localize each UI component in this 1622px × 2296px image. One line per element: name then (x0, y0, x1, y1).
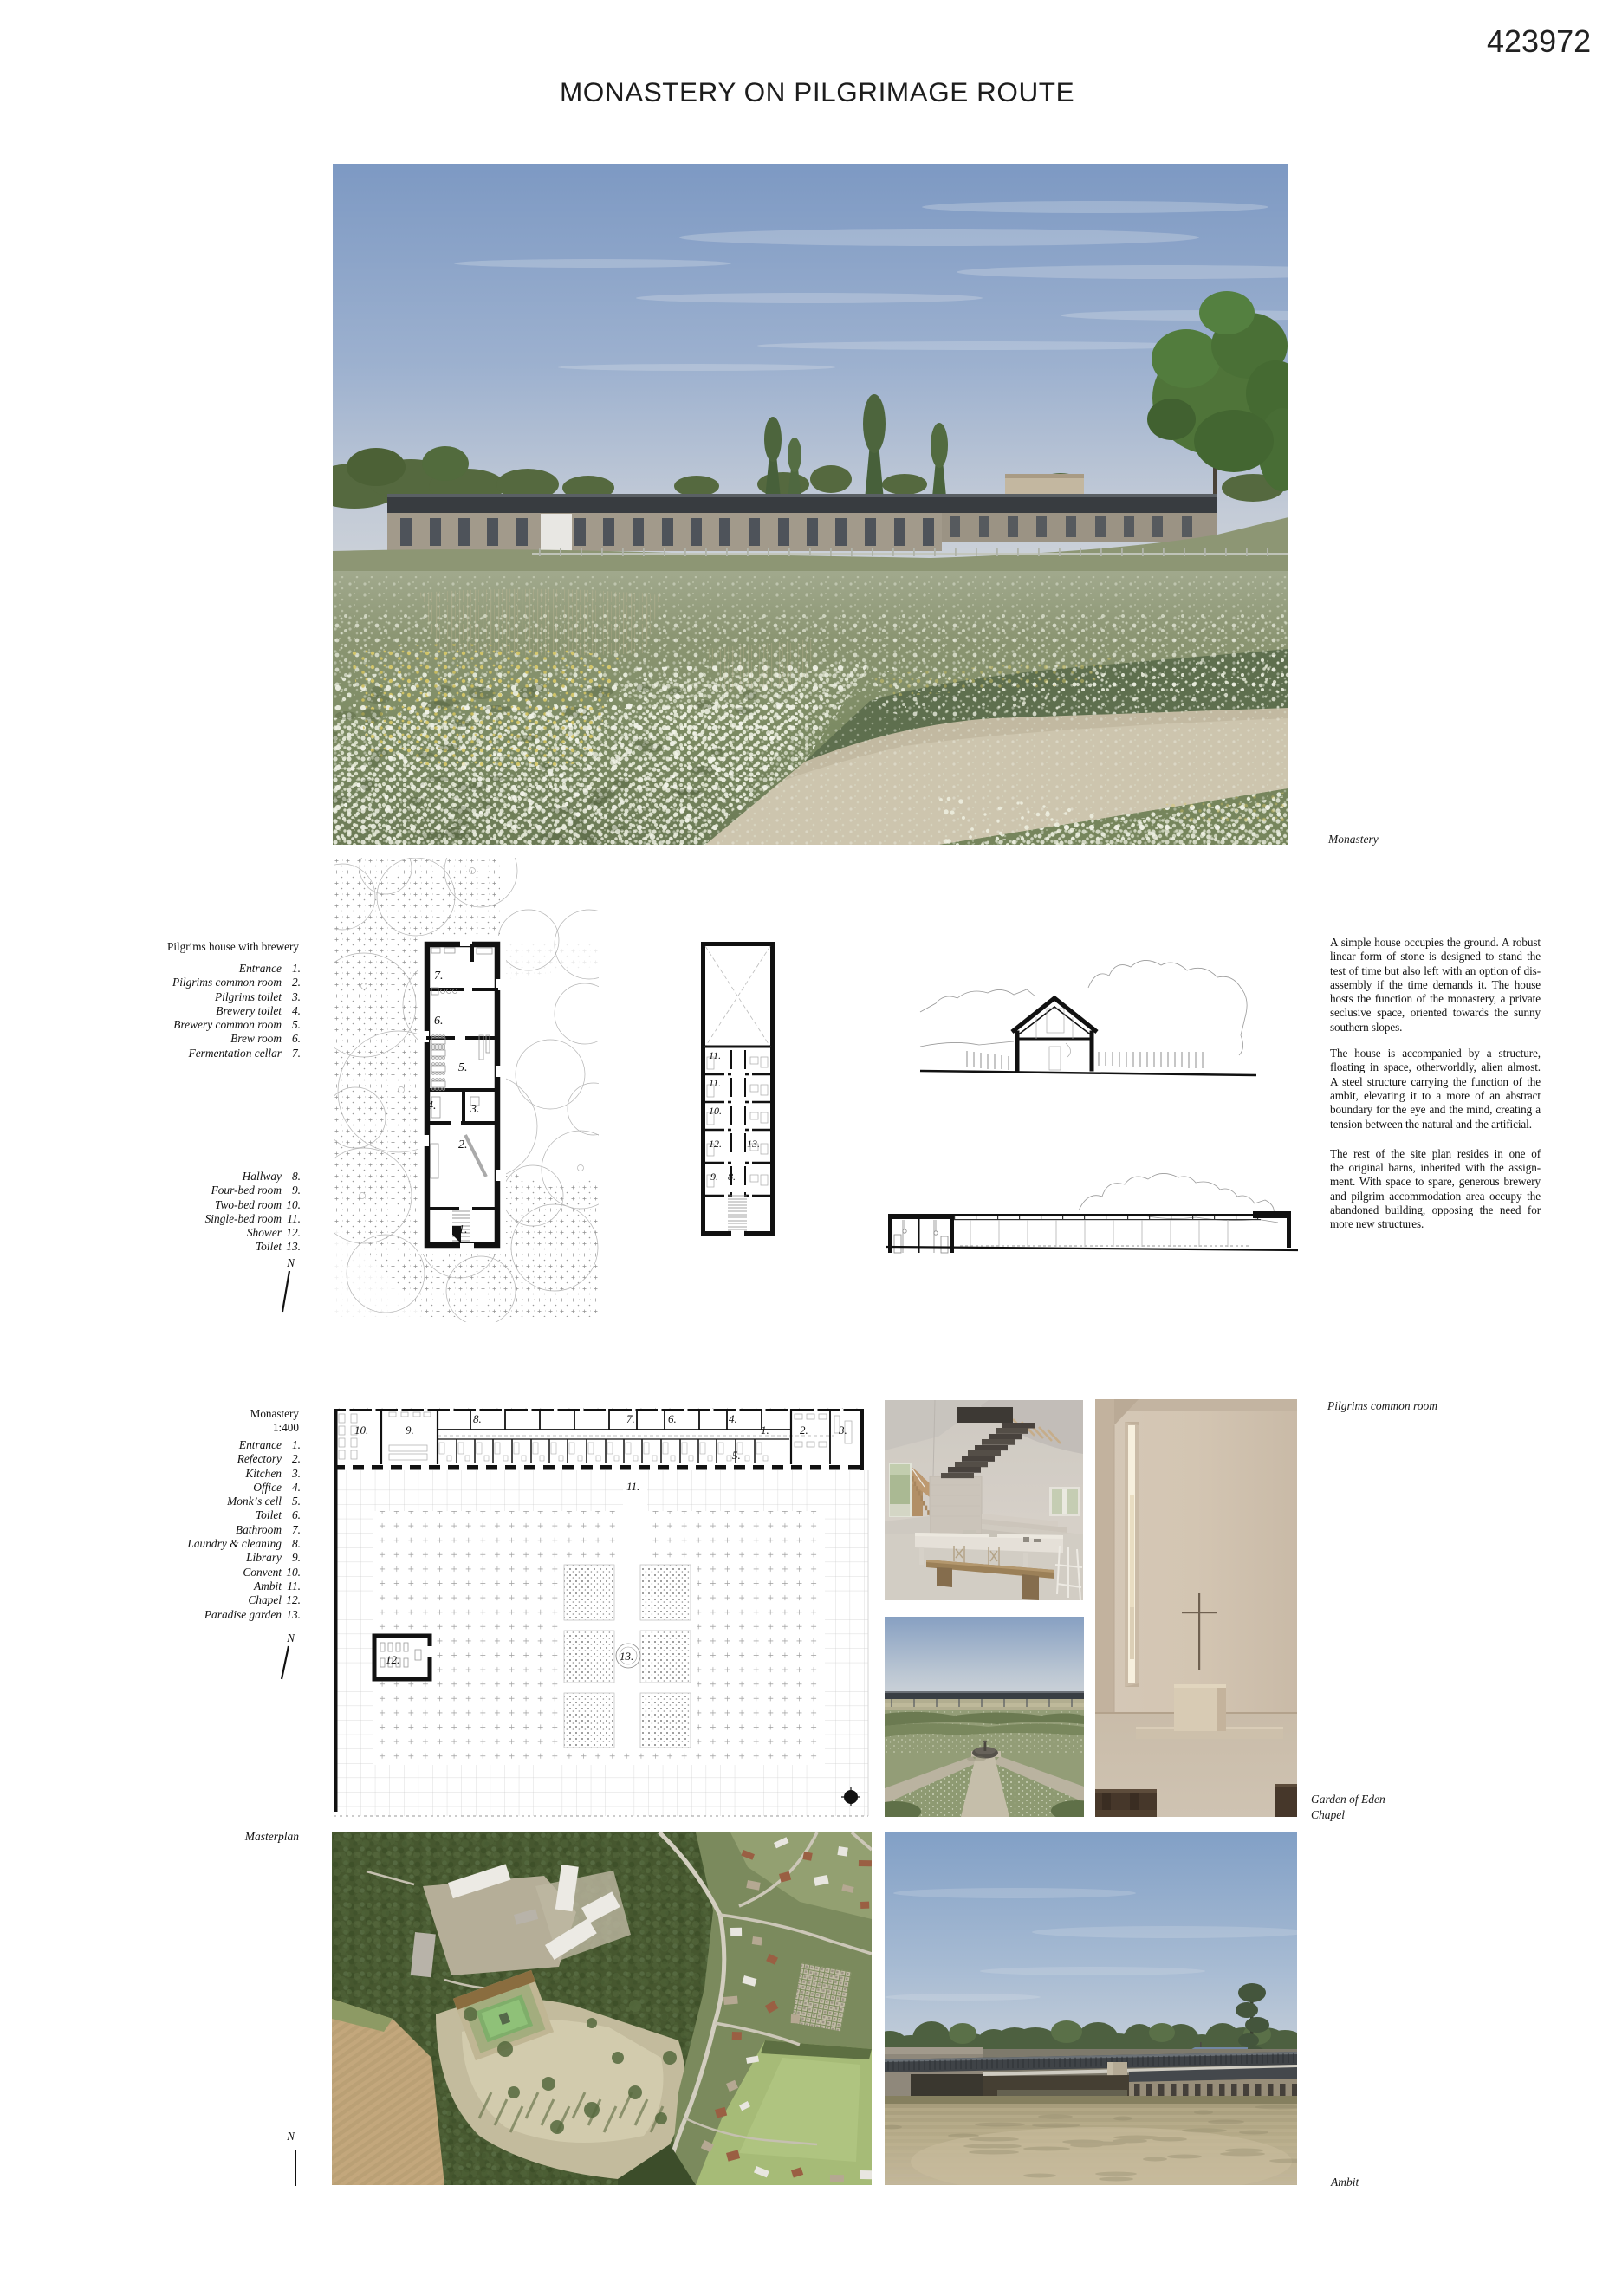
svg-text:13.: 13. (747, 1138, 760, 1150)
svg-text:11.: 11. (709, 1049, 721, 1061)
svg-text:3.: 3. (470, 1103, 480, 1116)
svg-text:11.: 11. (626, 1480, 639, 1493)
svg-text:3.: 3. (838, 1424, 847, 1437)
svg-text:9.: 9. (710, 1171, 718, 1183)
svg-text:8.: 8. (473, 1412, 482, 1425)
svg-text:5.: 5. (732, 1449, 741, 1462)
svg-text:6.: 6. (668, 1412, 677, 1425)
svg-text:12.: 12. (709, 1138, 722, 1150)
svg-text:7.: 7. (626, 1412, 635, 1425)
svg-text:2.: 2. (800, 1424, 808, 1437)
svg-text:7.: 7. (434, 970, 444, 983)
svg-text:11.: 11. (709, 1077, 721, 1089)
svg-text:4.: 4. (427, 1099, 437, 1112)
svg-text:12.: 12. (386, 1653, 399, 1666)
svg-text:2.: 2. (458, 1138, 468, 1151)
svg-text:4.: 4. (729, 1412, 737, 1425)
svg-text:6.: 6. (434, 1015, 444, 1028)
svg-text:1.: 1. (761, 1424, 769, 1437)
svg-text:10.: 10. (354, 1424, 368, 1437)
svg-text:1.: 1. (458, 1223, 468, 1236)
svg-text:13.: 13. (620, 1650, 633, 1663)
svg-text:5.: 5. (458, 1061, 468, 1074)
svg-text:8.: 8. (728, 1171, 736, 1183)
svg-text:10.: 10. (709, 1105, 722, 1117)
svg-text:9.: 9. (405, 1424, 414, 1437)
